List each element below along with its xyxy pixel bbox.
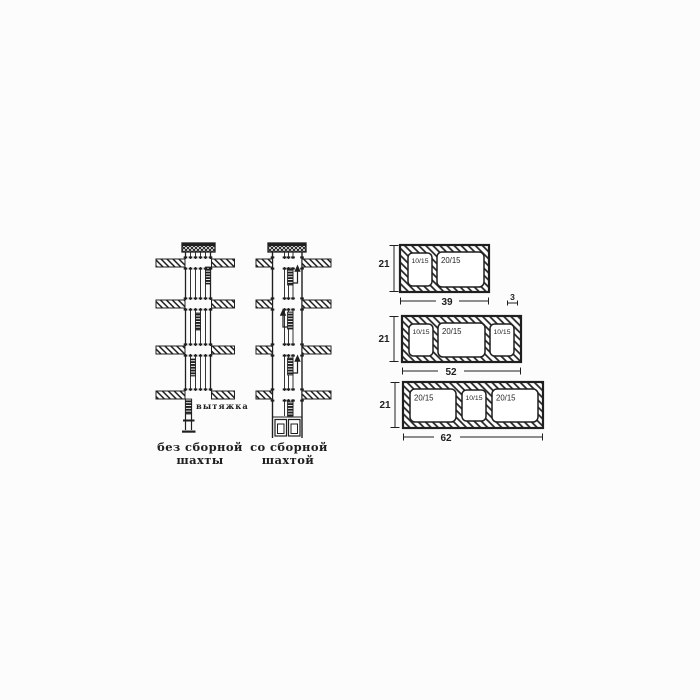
floor-slab (302, 300, 331, 308)
floor-slab (156, 346, 185, 354)
block1-width-dimension: 39 (401, 297, 489, 308)
block3-height-dimension: 21 (379, 383, 399, 428)
duct-grille (191, 359, 196, 376)
shaft2-base-boxes (273, 417, 303, 436)
block3-width-dimension: 62 (404, 433, 543, 444)
shaft1-roof-cap-top (182, 243, 215, 246)
duct-grille (288, 268, 294, 285)
block2-width-label: 52 (445, 367, 457, 378)
block3-opening3-label: 20/15 (496, 394, 516, 403)
shaft-with-collector: со сборной шахтой (250, 243, 331, 467)
exhaust-grille (186, 399, 192, 414)
floor-slab (156, 259, 185, 267)
floor-slab (212, 346, 235, 354)
joint-ticks (184, 256, 304, 401)
block3-opening2-label: 10/15 (465, 395, 482, 402)
floor-slab (256, 346, 273, 354)
floor-slab (212, 259, 235, 267)
duct-grille (288, 358, 294, 375)
shaft-without-collector: вытяжка без сборной шахты (156, 243, 249, 467)
floor-slab (212, 391, 235, 399)
up-arrow-icon (294, 265, 300, 272)
shaft2-roof-cap-top (268, 243, 306, 246)
shaft1-caption-line2: шахты (176, 453, 223, 467)
block2-opening2-label: 20/15 (442, 327, 462, 336)
floor-slab (302, 259, 331, 267)
shaft2-floor-slabs (256, 259, 331, 399)
block1-opening2-label: 20/15 (441, 256, 461, 265)
floor-slab (256, 300, 273, 308)
block2-width-dimension: 52 (403, 367, 521, 378)
base-box-inner (291, 424, 298, 434)
block3-opening1-label: 20/15 (414, 394, 434, 403)
duct-grille (288, 402, 294, 416)
block2-opening3-label: 10/15 (493, 329, 510, 336)
base-box-inner (278, 424, 285, 434)
shaft1-caption-line1: без сборной (157, 440, 243, 454)
exhaust-flange (183, 420, 195, 422)
duct-grille (196, 313, 201, 330)
block1-height-label: 21 (378, 259, 390, 270)
shaft2-caption-line2: шахтой (262, 453, 314, 467)
block1-height-dimension: 21 (378, 246, 398, 292)
block1-thickness-label: 3 (510, 292, 515, 302)
exhaust-label: вытяжка (196, 401, 249, 411)
block1-width-label: 39 (441, 297, 453, 308)
block2-opening1-label: 10/15 (412, 329, 429, 336)
block-section-39: 10/15 20/15 21 39 3 (378, 245, 518, 308)
floor-slab (212, 300, 235, 308)
block3-width-label: 62 (440, 433, 452, 444)
floor-slab (302, 346, 331, 354)
floor-slab (156, 300, 185, 308)
shaft2-caption-line1: со сборной (250, 440, 328, 454)
flow-arrow-stem (293, 361, 298, 373)
block1-wall-thickness-dimension: 3 (507, 292, 518, 306)
exhaust-foot (182, 431, 196, 433)
flow-arrow-stem (283, 315, 288, 327)
block2-height-label: 21 (378, 334, 390, 345)
block-section-52: 10/15 20/15 10/15 21 52 (378, 316, 521, 378)
floor-slab (256, 259, 273, 267)
scanned-figure: вытяжка без сборной шахты (0, 0, 700, 700)
flow-arrow-stem (293, 271, 298, 283)
floor-slab (156, 391, 185, 399)
block1-opening1-label: 10/15 (411, 258, 428, 265)
block-section-62: 20/15 10/15 20/15 21 62 (379, 382, 543, 444)
diagram-svg: вытяжка без сборной шахты (0, 0, 700, 700)
block2-height-dimension: 21 (378, 317, 398, 362)
block3-height-label: 21 (379, 400, 391, 411)
floor-slab (302, 391, 331, 399)
duct-grille (288, 312, 294, 329)
floor-slab (256, 391, 273, 399)
up-arrow-icon (294, 355, 300, 362)
shaft1-exhaust-outlet (182, 399, 196, 433)
